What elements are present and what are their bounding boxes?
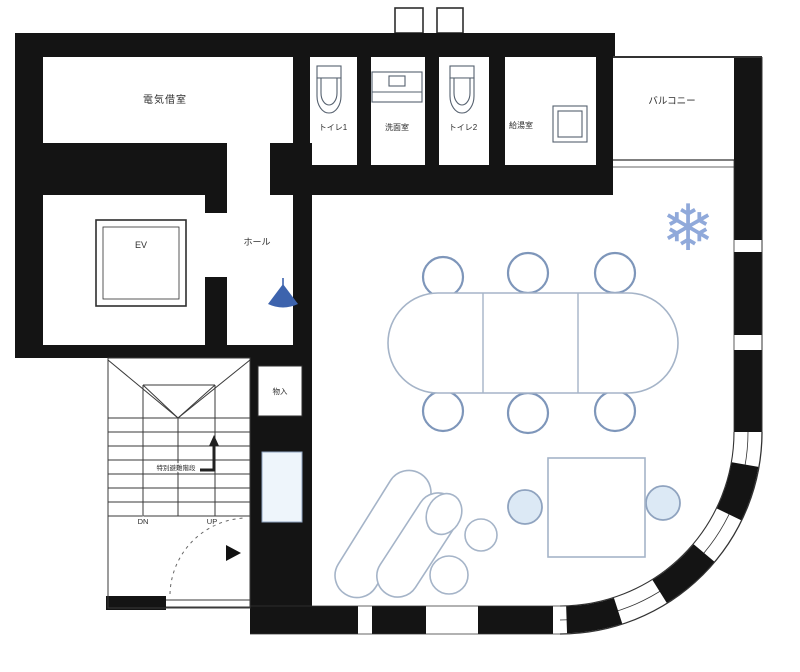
label-elevator: EV <box>135 240 147 250</box>
staircase <box>108 358 250 608</box>
roof-box-1 <box>395 8 423 33</box>
label-stair-note: 特別避難階段 <box>157 463 197 472</box>
entry-direction-arrow <box>226 545 241 561</box>
label-kitchenette: 給湯室 <box>509 120 533 130</box>
conference-set <box>388 253 678 433</box>
floor-plan-canvas: ❄ 電気借室 トイレ1 洗面室 トイレ2 給湯室 バルコニー EV ホール 物入… <box>0 0 800 672</box>
snowflake-icon: ❄ <box>661 192 715 264</box>
counter-niche <box>262 452 302 522</box>
label-stair-up: UP <box>207 517 217 526</box>
elevator-shaft <box>96 220 186 306</box>
stair-up-arrow <box>200 444 214 470</box>
lounge-round-table-2 <box>430 556 468 594</box>
lounge-set <box>327 462 497 606</box>
label-electrical-room: 電気借室 <box>143 93 187 106</box>
label-toilet-1: トイレ1 <box>319 123 348 132</box>
square-table-set <box>508 458 680 557</box>
square-table <box>548 458 645 557</box>
washroom-counter <box>372 72 422 102</box>
label-toilet-2: トイレ2 <box>449 123 478 132</box>
label-storage: 物入 <box>273 386 288 396</box>
roof-box-2 <box>437 8 463 33</box>
label-stair-down: DN <box>138 517 149 526</box>
label-hall: ホール <box>243 237 270 247</box>
label-balcony: バルコニー <box>648 96 695 107</box>
floor-plan: ❄ 電気借室 トイレ1 洗面室 トイレ2 給湯室 バルコニー EV ホール 物入… <box>0 0 800 672</box>
lounge-round-table-1 <box>465 519 497 551</box>
kitchenette-sink <box>553 106 587 142</box>
toilet-2-fixture <box>450 66 474 113</box>
toilet-1-fixture <box>317 66 341 113</box>
label-washroom: 洗面室 <box>385 122 409 132</box>
conference-table <box>388 293 678 393</box>
